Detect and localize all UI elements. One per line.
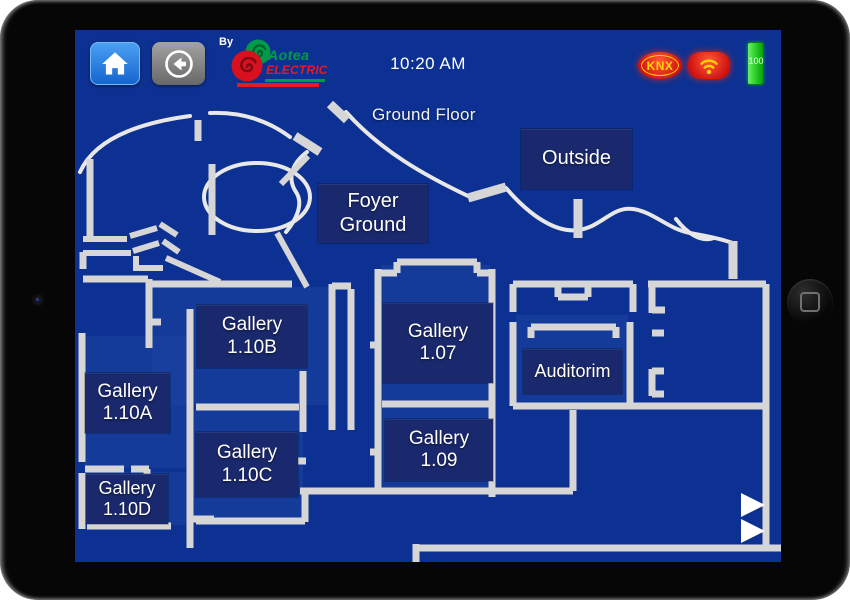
room-label-gallery-1-09[interactable]: Gallery 1.09 [385, 419, 493, 481]
page-nav-arrow-1[interactable] [741, 493, 765, 517]
room-label-gallery-1-10c[interactable]: Gallery 1.10C [196, 432, 298, 497]
room-label-line: 1.10C [222, 465, 273, 487]
room-label-line: Gallery [409, 428, 469, 450]
room-label-line: Gallery [98, 478, 155, 499]
front-camera-icon [33, 295, 43, 305]
home-square-icon [800, 292, 820, 312]
room-label-line: Gallery [217, 442, 277, 464]
room-label-line: Ground [340, 214, 407, 238]
minor-walls [83, 156, 308, 287]
room-label-line: 1.09 [421, 450, 458, 472]
page-nav-arrow-2[interactable] [741, 519, 765, 543]
room-label-line: Outside [542, 147, 611, 171]
room-label-line: 1.10D [103, 499, 151, 520]
room-label-line: Gallery [222, 314, 282, 336]
room-label-outside[interactable]: Outside [521, 129, 632, 189]
floor-title: Ground Floor [372, 105, 476, 125]
room-label-gallery-1-10b[interactable]: Gallery 1.10B [197, 305, 307, 368]
room-label-gallery-1-10d[interactable]: Gallery 1.10D [86, 474, 168, 524]
room-label-line: 1.10B [227, 337, 277, 359]
tablet-home-button[interactable] [787, 279, 833, 325]
room-label-line: Auditorim [534, 361, 610, 382]
room-label-line: 1.10A [103, 403, 153, 425]
room-label-gallery-1-07[interactable]: Gallery 1.07 [383, 303, 493, 383]
room-label-gallery-1-10a[interactable]: Gallery 1.10A [85, 373, 170, 433]
screen: By Aotea ELECTRIC 10:20 AM KNX 100 [75, 30, 781, 562]
room-label-line: Foyer [347, 190, 398, 214]
room-label-foyer-ground[interactable]: Foyer Ground [318, 184, 428, 243]
page: By Aotea ELECTRIC 10:20 AM KNX 100 [0, 0, 850, 600]
room-label-auditorium[interactable]: Auditorim [523, 349, 622, 394]
tablet-frame: By Aotea ELECTRIC 10:20 AM KNX 100 [0, 0, 850, 600]
room-label-line: Gallery [97, 381, 157, 403]
room-label-line: Gallery [408, 321, 468, 343]
room-label-line: 1.07 [420, 343, 457, 365]
